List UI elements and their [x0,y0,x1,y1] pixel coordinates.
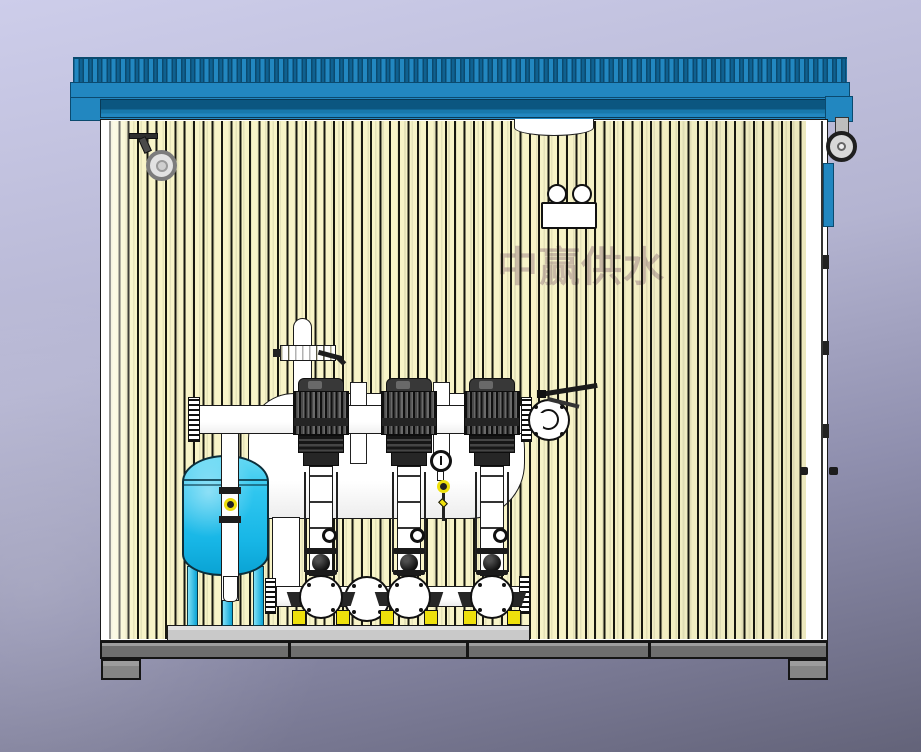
motor-band [465,418,519,426]
suction-left-flange [265,578,276,614]
roof-soffit [100,99,826,118]
flange-bolt [419,608,423,612]
emergency-lamp-right [572,184,592,204]
pump-gauge-icon [322,528,337,543]
drop-pipe-bottom-fitting [223,576,238,602]
tie-rod [336,472,338,572]
valve-bolt [560,432,564,436]
ceiling-dome-light [514,119,594,136]
gauge-petcock [437,480,450,493]
flange-bolt [395,608,399,612]
anchor-pad [507,610,521,625]
emergency-light-box [541,202,597,229]
tie-rod [424,472,426,572]
flange-bolt [419,583,423,587]
flange-bolt [502,583,506,587]
pump-gauge-icon [410,528,425,543]
motor-emblem-icon [479,381,493,389]
frame-divider [648,641,651,659]
tie-rod [507,472,509,572]
door-handle-outer [829,467,838,475]
anchor-pad [424,610,438,625]
vertical-pump-2 [379,378,439,626]
frame-divider [288,641,291,659]
motor-band [382,418,436,426]
anchor-pad [292,610,306,625]
drop-pipe-flange [219,487,241,494]
valve-bolt [560,405,564,409]
tank-leg [187,566,198,626]
flange-bolt [352,584,356,588]
spotlight-lens [156,160,168,172]
drop-pipe-flange [219,516,241,523]
column-seam [310,501,332,503]
door-hinge-icon [823,341,829,355]
exterior-blue-panel [823,163,834,227]
tie-rod [475,472,477,572]
tank-leg [222,598,233,626]
column-seam [310,475,332,477]
tank-leg [253,566,264,626]
flange-bolt [307,583,311,587]
tie-rod [304,472,306,572]
frame-divider [466,641,469,659]
valve-bolt [534,405,538,409]
support-foot [788,659,828,680]
flange-bolt [331,608,335,612]
valve-lever-knob [537,390,546,398]
roof-corrugation [73,57,847,83]
pump-gauge-icon [493,528,508,543]
manifold-gauge-needle [440,456,442,465]
flange-bolt [478,608,482,612]
column-seam [398,501,420,503]
motor-band [294,418,348,426]
column-seam [398,475,420,477]
exhaust-fan-hub [837,142,846,151]
motor-flange-rings [386,435,432,453]
pump-station-render: 中赢供水 [0,0,921,752]
support-foot [101,659,141,680]
motor-flange-rings [469,435,515,453]
emergency-lamp-left [547,184,567,204]
column-seam [481,475,503,477]
valve-bolt [534,432,538,436]
anchor-pad [380,610,394,625]
flange-bolt [307,608,311,612]
door-hinge-icon [823,424,829,438]
motor-fins [464,391,520,435]
air-vent-nub [273,349,281,357]
flange-bolt [502,608,506,612]
flange-bolt [352,610,356,614]
flange-bolt [331,583,335,587]
motor-adapter [303,452,339,466]
motor-fins [293,391,349,435]
vertical-pump-1 [291,378,351,626]
vertical-pump-3 [462,378,522,626]
anchor-pad [336,610,350,625]
drop-pipe-valve-handle [224,498,237,511]
manifold-left-flange [188,397,200,442]
motor-adapter [391,452,427,466]
motor-fins [381,391,437,435]
flange-bolt [478,583,482,587]
butterfly-valve-bore-gap [533,413,543,428]
anchor-pad [463,610,477,625]
base-frame-rail [100,641,828,659]
tie-rod [392,472,394,572]
motor-flange-rings [298,435,344,453]
door-hinge-icon [823,255,829,269]
motor-adapter [474,452,510,466]
equipment-skid-plate [167,625,530,641]
door-handle-inner [800,467,808,475]
motor-emblem-icon [396,381,410,389]
motor-emblem-icon [308,381,322,389]
column-seam [481,501,503,503]
flange-bolt [395,583,399,587]
